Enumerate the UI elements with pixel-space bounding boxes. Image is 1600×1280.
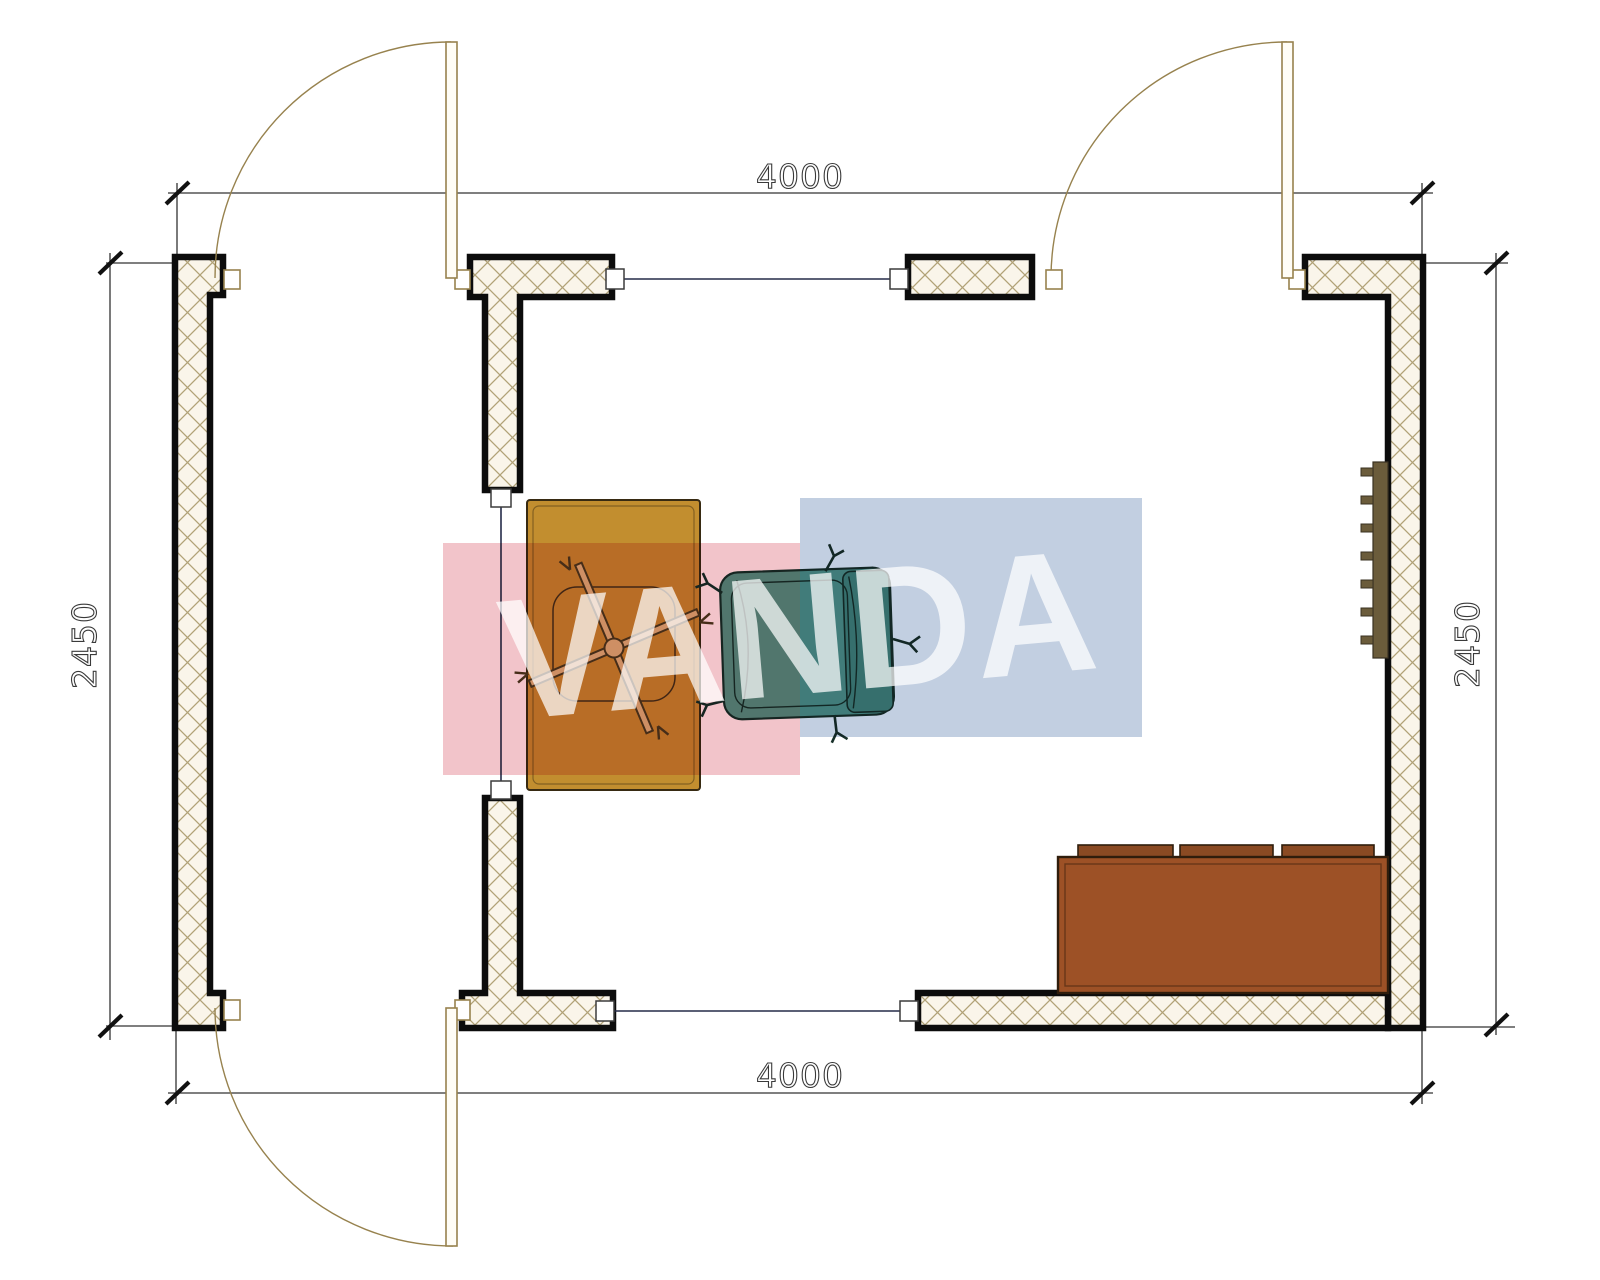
sofa bbox=[1058, 845, 1388, 993]
wall-bottom-tee bbox=[462, 798, 613, 1028]
wall-left bbox=[175, 257, 223, 1028]
floor-plan-drawing: 4000 4000 2450 2450 bbox=[0, 0, 1600, 1280]
door-top-left bbox=[215, 42, 470, 289]
radiator-fin bbox=[1361, 496, 1373, 504]
window-bottom-cap-right bbox=[900, 1001, 918, 1021]
dim-value-top: 4000 bbox=[756, 157, 844, 196]
door-bottom-left bbox=[215, 1000, 470, 1246]
radiator-fin bbox=[1361, 580, 1373, 588]
radiator-bar bbox=[1373, 462, 1388, 658]
wall-top-tee bbox=[470, 257, 612, 490]
door-bottom-left-swing-arc bbox=[215, 1008, 453, 1246]
partition-cap-top bbox=[491, 489, 511, 507]
door-top-left-leaf bbox=[446, 42, 457, 278]
dimension-bottom: 4000 bbox=[166, 1028, 1434, 1104]
door-top-right bbox=[1046, 42, 1305, 289]
radiator-fin bbox=[1361, 608, 1373, 616]
dim-value-bottom: 4000 bbox=[756, 1056, 844, 1095]
wall-bottom-right bbox=[918, 993, 1388, 1028]
floor-plan-canvas: 4000 4000 2450 2450 bbox=[0, 0, 1600, 1280]
radiator-fin bbox=[1361, 524, 1373, 532]
partition-cap-bottom bbox=[491, 781, 511, 799]
window-top-cap-right bbox=[890, 269, 908, 289]
dim-extensions-left bbox=[106, 263, 176, 1026]
window-bottom-cap-left bbox=[596, 1001, 614, 1021]
dimension-top: 4000 bbox=[166, 157, 1434, 257]
door-bottom-left-jamb-left bbox=[224, 1000, 240, 1020]
door-top-left-jamb-left bbox=[224, 270, 240, 289]
dimension-left: 2450 bbox=[65, 252, 176, 1040]
dim-value-left: 2450 bbox=[65, 601, 104, 689]
door-top-right-jamb-left bbox=[1046, 270, 1062, 289]
dim-value-right: 2450 bbox=[1448, 600, 1487, 688]
wall-top-middle bbox=[908, 257, 1032, 297]
sofa-seat bbox=[1058, 857, 1388, 993]
door-top-right-leaf bbox=[1282, 42, 1293, 278]
radiator-fin bbox=[1361, 636, 1373, 644]
radiator bbox=[1361, 462, 1388, 658]
radiator-fin bbox=[1361, 468, 1373, 476]
window-top-cap-left bbox=[606, 269, 624, 289]
radiator-fin bbox=[1361, 552, 1373, 560]
door-bottom-left-leaf bbox=[446, 1008, 457, 1246]
door-top-left-swing-arc bbox=[215, 42, 451, 278]
door-top-right-swing-arc bbox=[1051, 42, 1287, 278]
